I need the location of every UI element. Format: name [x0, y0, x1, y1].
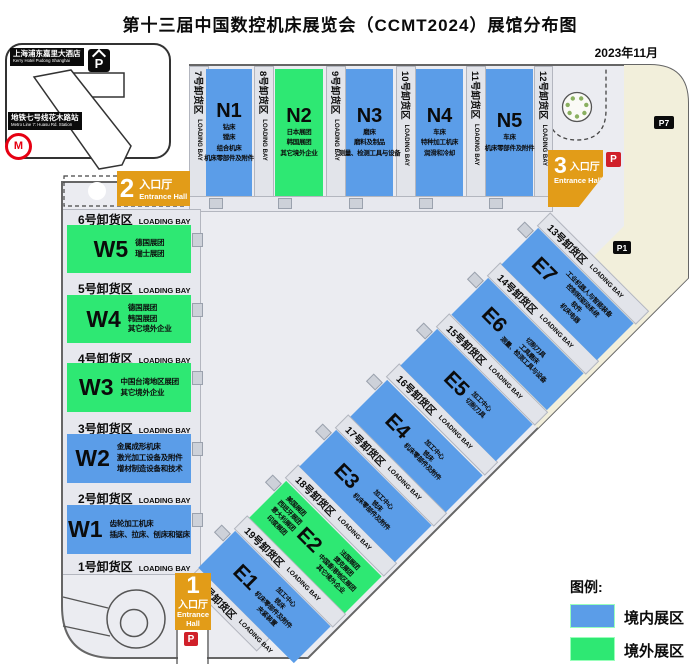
hall-w2: W2 金属成形机床激光加工设备及附件增材制造设备和技术 — [67, 434, 191, 483]
page-title: 第十三届中国数控机床展览会（CCMT2024）展馆分布图 — [0, 11, 700, 36]
entrance2-zh: 入口厅 — [139, 176, 187, 192]
entrance3-en: Entrance Hall — [554, 176, 603, 185]
hall-w2-line: 增材制造设备和技术 — [117, 464, 183, 475]
hall-n5-name: N5 — [497, 111, 523, 131]
hall-w1-line: 插床、拉床、刨床和锯床 — [110, 530, 190, 541]
hall-w1-name: W1 — [68, 516, 103, 543]
hall-n1-line: 钻床 — [204, 123, 254, 133]
map-date: 2023年11月 — [558, 44, 658, 61]
hall-n1-name: N1 — [216, 101, 242, 121]
entrance2-number: 2 — [120, 173, 134, 204]
hall-w1-line: 齿轮加工机床 — [110, 519, 190, 530]
hall-n4-name: N4 — [427, 106, 453, 126]
hall-w5-line: 瑞士展团 — [135, 249, 164, 260]
entrance2-circle — [88, 182, 106, 200]
legend-label-overseas: 境外展区 — [624, 640, 684, 661]
ccmt-floorplan-map: 第十三届中国数控机床展览会（CCMT2024）展馆分布图 2023年11月 上海… — [0, 0, 700, 667]
hall-w5: W5 德国展团瑞士展团 — [67, 225, 191, 273]
hall-w5-line: 德国展团 — [135, 238, 164, 249]
bay12-label: 12号卸货区 — [538, 71, 552, 120]
hall-n5-line: 机床零部件及附件 — [485, 144, 535, 154]
hall-door — [192, 303, 203, 317]
hall-n2-name: N2 — [286, 106, 312, 126]
parking-gate3-badge: P — [606, 152, 621, 167]
bay7-en: LOADING BAY — [197, 119, 203, 160]
entrance-hall-2: 2 入口厅Entrance Hall — [117, 171, 190, 206]
roundabout-inner — [121, 610, 148, 637]
bay12-en: LOADING BAY — [542, 125, 548, 166]
entrance1-number: 1 — [186, 575, 199, 597]
hall-n1-line: 机床零部件及附件 — [204, 154, 254, 164]
hall-n2-line: 韩国展团 — [280, 138, 317, 148]
bay7-label: 7号卸货区 — [193, 71, 207, 114]
hall-n2: N2 日本展团韩国展团其它境外企业 — [275, 69, 323, 196]
bay11-en: LOADING BAY — [474, 124, 480, 165]
bay2-en: LOADING BAY — [139, 496, 191, 505]
hall-door — [192, 371, 203, 385]
hall-n3-line: 磨料及制品 — [339, 138, 401, 148]
parking-p1-badge: P1 — [613, 241, 631, 254]
entrance-hall-1: 1 入口厅 Entrance Hall — [175, 573, 211, 630]
bay11-label: 11号卸货区 — [470, 71, 484, 119]
legend-swatch-domestic — [570, 604, 615, 628]
entrance3-number: 3 — [554, 155, 567, 176]
hall-n3-line: 测量、检测工具与设备 — [339, 149, 401, 159]
entrance2-en: Entrance Hall — [139, 192, 187, 201]
entrance1-zh: 入口厅 — [178, 596, 208, 611]
bay10-en: LOADING BAY — [404, 125, 410, 166]
loading-bay-11: 11号卸货区LOADING BAY — [466, 66, 486, 198]
hall-w3-name: W3 — [79, 374, 114, 401]
hall-n3: N3 磨床磨料及制品测量、检测工具与设备 — [346, 69, 393, 196]
hall-n1-line: 组合机床 — [204, 144, 254, 154]
hall-w1: W1 齿轮加工机床插床、拉床、刨床和锯床 — [67, 505, 191, 554]
hall-w4-line: 其它境外企业 — [128, 324, 172, 335]
hall-n2-line: 日本展团 — [280, 128, 317, 138]
hall-w3-line: 其它境外企业 — [121, 388, 179, 399]
hall-door — [192, 233, 203, 247]
hall-w5-name: W5 — [94, 236, 129, 263]
bay8-en: LOADING BAY — [262, 119, 268, 160]
hall-w2-line: 金属成形机床 — [117, 442, 183, 453]
hall-w4-line: 韩国展团 — [128, 314, 172, 325]
hall-door — [192, 513, 203, 527]
hall-n2-line: 其它境外企业 — [280, 149, 317, 159]
hall-w3-line: 中国台湾地区展团 — [121, 377, 179, 388]
metro-name-en: Metro Line 7: Huasu Rd. Station — [11, 123, 79, 128]
hotel-parking-icon: P — [88, 49, 110, 72]
bay10-label: 10号卸货区 — [400, 71, 414, 120]
hall-w4-line: 德国展团 — [128, 303, 172, 314]
hotel-name-en: Kerry Hotel Pudong Shanghai — [13, 59, 81, 64]
hall-n4-line: 车床 — [421, 128, 458, 138]
hall-n3-name: N3 — [357, 106, 383, 126]
loading-bay-1: 1号卸货区LOADING BAY — [78, 558, 191, 575]
hall-door — [278, 198, 292, 209]
hall-w2-line: 激光加工设备及附件 — [117, 453, 183, 464]
bay8-label: 8号卸货区 — [258, 71, 272, 114]
hall-w2-name: W2 — [75, 445, 110, 472]
hall-n3-line: 磨床 — [339, 128, 401, 138]
bay5-en: LOADING BAY — [139, 286, 191, 295]
bay9-label: 9号卸货区 — [330, 71, 344, 114]
hall-door — [209, 198, 223, 209]
hall-n1-line: 镗床 — [204, 133, 254, 143]
loading-bay-8: 8号卸货区LOADING BAY — [254, 66, 274, 198]
metro-logo-icon: M — [5, 133, 32, 160]
bay1-en: LOADING BAY — [139, 564, 191, 573]
hall-n4-line: 特种加工机床 — [421, 138, 458, 148]
legend-label-domestic: 境内展区 — [624, 607, 684, 628]
legend-swatch-overseas — [570, 637, 615, 661]
metro-label: 地铁七号线花木路站 Metro Line 7: Huasu Rd. Statio… — [8, 112, 82, 130]
hall-n5: N5 车床机床零部件及附件 — [486, 69, 533, 196]
hall-n1: N1 钻床镗床组合机床机床零部件及附件 — [206, 69, 252, 196]
hall-w4-name: W4 — [86, 306, 121, 333]
legend-heading: 图例: — [570, 577, 603, 597]
entrance1-en: Entrance Hall — [176, 611, 210, 628]
hall-door — [419, 198, 433, 209]
hall-door — [192, 442, 203, 456]
parking-p7-badge: P7 — [654, 116, 674, 129]
hall-door — [489, 198, 503, 209]
parking-gate1-badge: P — [184, 632, 198, 646]
hall-w3: W3 中国台湾地区展团其它境外企业 — [67, 363, 191, 412]
bay1-label: 1号卸货区 — [78, 558, 133, 575]
hall-n5-line: 车床 — [485, 133, 535, 143]
hall-n4: N4 车床特种加工机床润滑和冷却 — [416, 69, 463, 196]
hotel-label: 上海浦东嘉里大酒店 Kerry Hotel Pudong Shanghai — [10, 48, 84, 66]
hall-n4-line: 润滑和冷却 — [421, 149, 458, 159]
hall-door — [349, 198, 363, 209]
hall-w4: W4 德国展团韩国展团其它境外企业 — [67, 295, 191, 343]
entrance3-zh: 入口厅 — [570, 158, 600, 173]
metro-logo-letter: M — [14, 141, 23, 152]
